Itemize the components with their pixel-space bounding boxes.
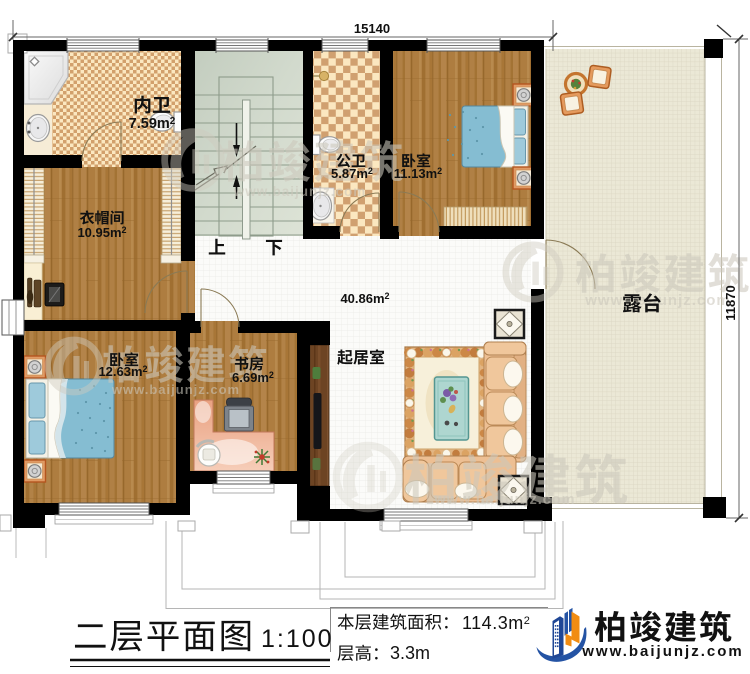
svg-text:114.3m2: 114.3m2 (462, 613, 530, 633)
svg-text:www.baijunjz.com: www.baijunjz.com (581, 643, 743, 660)
svg-text:11870: 11870 (723, 285, 738, 320)
svg-text:12.63m2: 12.63m2 (98, 364, 147, 379)
svg-text:40.86m2: 40.86m2 (340, 291, 389, 306)
svg-text:3.3m: 3.3m (390, 643, 430, 663)
svg-text:10.95m2: 10.95m2 (77, 225, 126, 240)
svg-text:15140: 15140 (354, 21, 390, 36)
svg-text:5.87m2: 5.87m2 (331, 166, 373, 181)
svg-text:www.baijunjz.com: www.baijunjz.com (433, 492, 575, 508)
svg-text:www.baijunjz.com: www.baijunjz.com (233, 184, 367, 199)
svg-text:7.59m2: 7.59m2 (129, 116, 176, 132)
svg-text:www.baijunjz.com: www.baijunjz.com (111, 382, 240, 397)
svg-text:11.13m2: 11.13m2 (394, 166, 442, 181)
svg-text:6.69m2: 6.69m2 (232, 370, 274, 385)
svg-text:1:100: 1:100 (261, 625, 334, 653)
